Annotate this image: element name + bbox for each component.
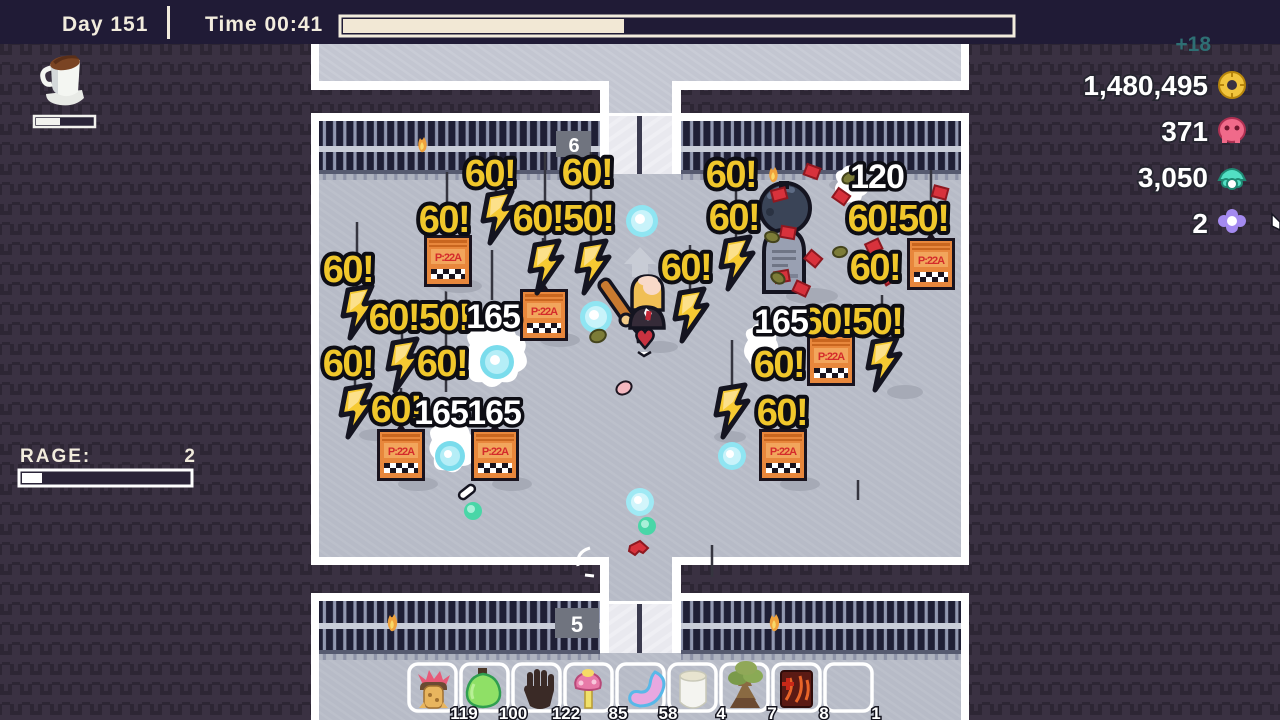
svg-text:60!: 60! bbox=[850, 247, 900, 289]
svg-text:120: 120 bbox=[850, 158, 904, 196]
svg-text:RAGE:: RAGE: bbox=[20, 446, 91, 467]
svg-text:85: 85 bbox=[609, 704, 628, 720]
svg-text:60!: 60! bbox=[417, 343, 467, 385]
svg-text:2: 2 bbox=[1192, 208, 1208, 239]
svg-text:60!50!: 60!50! bbox=[513, 198, 614, 240]
svg-text:60!50!: 60!50! bbox=[369, 297, 470, 339]
svg-text:60!: 60! bbox=[562, 152, 612, 194]
svg-text:60!: 60! bbox=[757, 392, 807, 434]
svg-text:4: 4 bbox=[716, 704, 726, 720]
svg-text:60!50!: 60!50! bbox=[848, 198, 949, 240]
svg-text:122: 122 bbox=[552, 704, 580, 720]
svg-text:60!: 60! bbox=[323, 343, 373, 385]
svg-text:60!: 60! bbox=[706, 154, 756, 196]
svg-text:60!: 60! bbox=[323, 249, 373, 291]
svg-text:Time 00:41: Time 00:41 bbox=[205, 13, 323, 36]
svg-text:165: 165 bbox=[466, 298, 520, 336]
svg-text:58: 58 bbox=[659, 704, 678, 720]
svg-text:8: 8 bbox=[819, 704, 828, 720]
svg-text:5: 5 bbox=[571, 612, 583, 637]
svg-text:60!50!: 60!50! bbox=[802, 301, 903, 343]
svg-text:165: 165 bbox=[754, 303, 808, 341]
svg-text:+18: +18 bbox=[1175, 33, 1211, 56]
svg-text:1,480,495: 1,480,495 bbox=[1083, 70, 1208, 101]
svg-text:60!: 60! bbox=[754, 344, 804, 386]
svg-text:Day 151: Day 151 bbox=[62, 13, 148, 36]
svg-text:371: 371 bbox=[1161, 116, 1208, 147]
svg-text:60!: 60! bbox=[661, 247, 711, 289]
svg-text:60!: 60! bbox=[419, 199, 469, 241]
svg-text:165: 165 bbox=[467, 394, 521, 432]
svg-text:60!: 60! bbox=[465, 153, 515, 195]
svg-text:7: 7 bbox=[767, 704, 776, 720]
svg-text:165: 165 bbox=[414, 394, 468, 432]
svg-text:1: 1 bbox=[871, 704, 880, 720]
svg-text:60!: 60! bbox=[709, 197, 759, 239]
svg-text:100: 100 bbox=[499, 704, 527, 720]
svg-text:2: 2 bbox=[184, 446, 195, 467]
svg-text:119: 119 bbox=[450, 704, 477, 720]
svg-text:3,050: 3,050 bbox=[1138, 162, 1208, 193]
